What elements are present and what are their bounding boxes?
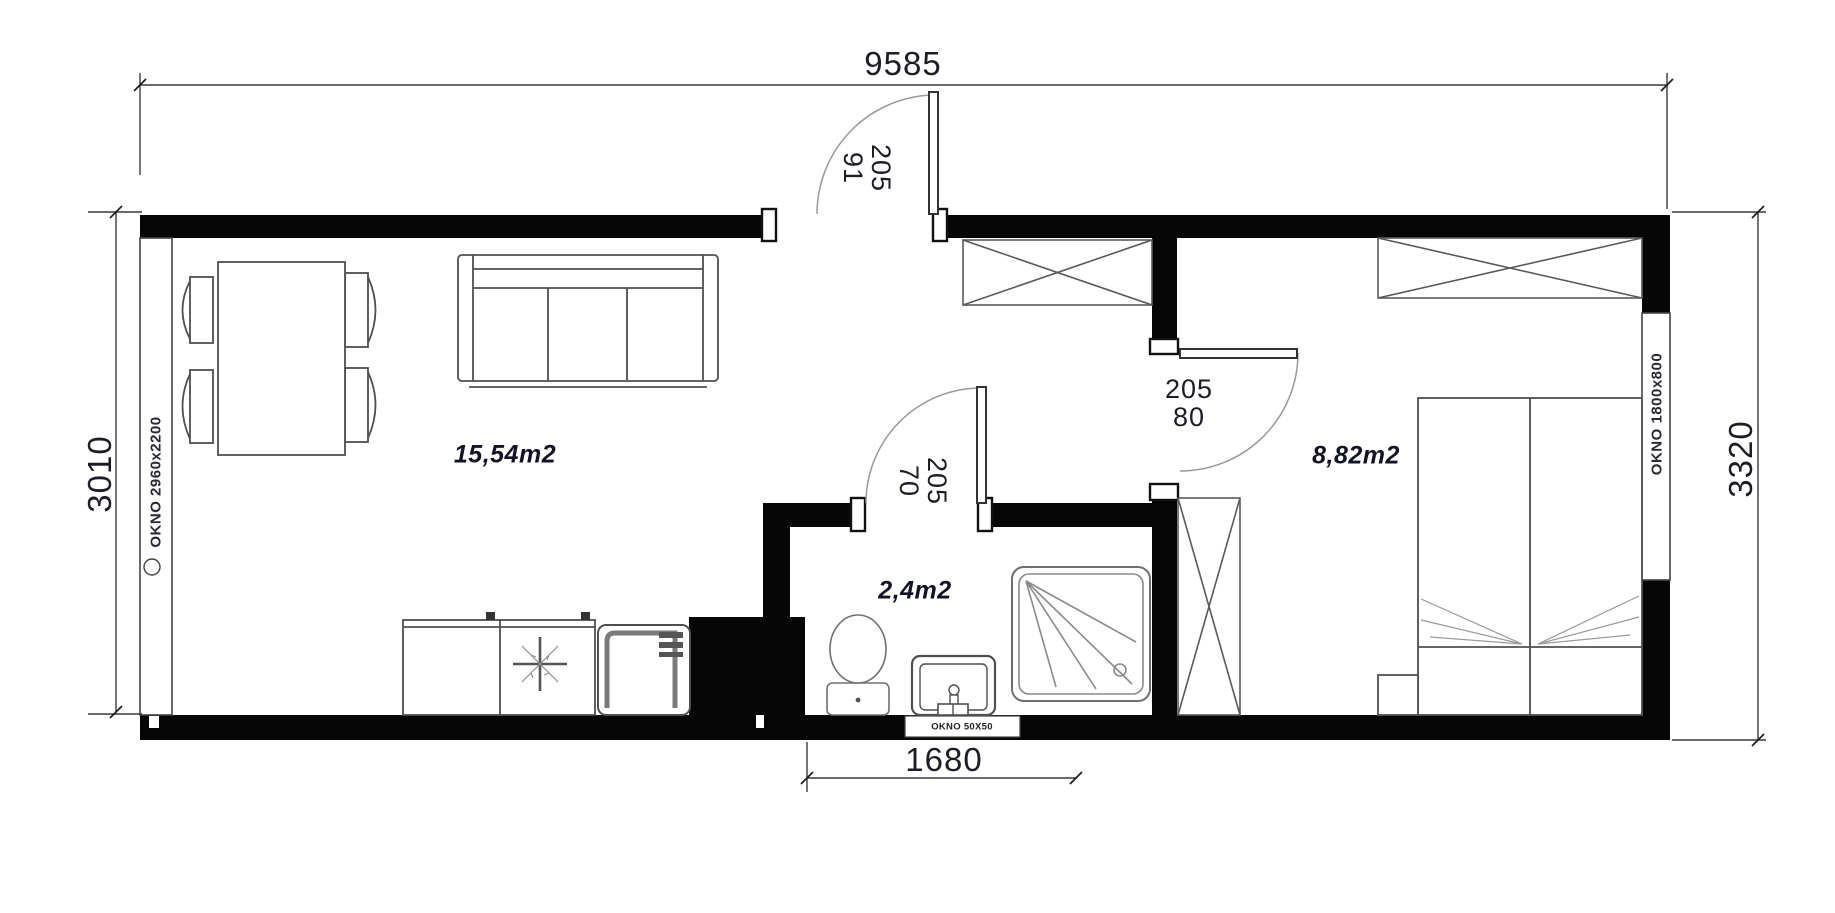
bathroom-door-height: 205 xyxy=(923,457,951,505)
sink-drain xyxy=(949,685,959,695)
wall-bathroom-top-right xyxy=(985,503,1177,527)
window-bathroom-label: OKNO 50X50 xyxy=(931,722,993,733)
entrance-door-leaf xyxy=(929,92,938,214)
toilet xyxy=(827,615,889,715)
window-left-label: OKNO 2960x2200 xyxy=(148,416,165,547)
dim-bathroom-width: 1680 xyxy=(905,741,982,779)
living-room-area-label: 15,54m2 xyxy=(454,441,556,470)
fridge-grille-icon xyxy=(659,642,683,648)
bedside-shelf xyxy=(1378,675,1418,715)
fridge-grille-icon xyxy=(659,632,683,638)
wall-partition-bedroom xyxy=(1152,238,1177,352)
wall-notch xyxy=(756,715,764,728)
jamb-bathroom-left xyxy=(851,498,865,531)
dim-total-width: 9585 xyxy=(864,45,941,83)
chair-back xyxy=(183,281,191,339)
toilet-button xyxy=(856,698,861,703)
toilet-bowl xyxy=(830,615,886,683)
bedroom-door-leaf xyxy=(1180,349,1297,358)
shower xyxy=(1012,567,1150,701)
bathroom-door-width: 70 xyxy=(895,457,923,505)
fridge-grille-icon xyxy=(659,652,683,657)
wall-bathroom-left xyxy=(763,503,790,618)
chair-back xyxy=(368,372,376,438)
fridge xyxy=(598,625,690,715)
chair xyxy=(345,273,368,347)
chair xyxy=(345,368,368,442)
dim-right-height: 3320 xyxy=(1722,420,1760,497)
bedroom-door-width: 80 xyxy=(1165,403,1213,431)
dim-left-height: 3010 xyxy=(81,435,119,512)
jamb-bedroom-top xyxy=(1150,339,1178,354)
jamb-bedroom-bottom xyxy=(1150,484,1178,500)
wall-right-upper xyxy=(1642,215,1670,313)
window-right-label: OKNO 1800x800 xyxy=(1649,353,1666,475)
chair xyxy=(190,277,213,343)
wall-kitchen-mass xyxy=(689,617,805,715)
bed xyxy=(1378,398,1642,715)
sofa-body xyxy=(458,255,718,381)
bedroom-door-label: 205 80 xyxy=(1165,375,1213,431)
bathroom-area-label: 2,4m2 xyxy=(878,577,951,606)
wall-top-left xyxy=(140,215,767,238)
jamb-entrance-left xyxy=(762,209,776,241)
chair-back xyxy=(183,374,191,439)
counter-handle xyxy=(581,612,590,620)
wall-notch-left xyxy=(149,716,159,728)
counter-handle xyxy=(486,612,495,620)
entrance-door-height: 205 xyxy=(867,144,895,192)
dining-set xyxy=(183,262,376,455)
bedroom-area-label: 8,82m2 xyxy=(1312,442,1400,471)
chair-back xyxy=(368,277,376,343)
sofa xyxy=(458,255,718,387)
chair xyxy=(190,370,213,443)
bedroom-door-height: 205 xyxy=(1165,375,1213,403)
floor-plan-canvas: 9585 3010 3320 1680 205 91 205 80 205 70… xyxy=(0,0,1835,913)
counter-outline xyxy=(403,620,595,715)
bathroom-door-leaf xyxy=(977,387,986,503)
entrance-door-label: 205 91 xyxy=(839,144,895,192)
sink xyxy=(912,656,995,715)
dining-table xyxy=(218,262,345,455)
wall-bathroom-right xyxy=(1152,499,1177,715)
wall-top-right xyxy=(945,215,1670,238)
bathroom-door-label: 205 70 xyxy=(895,457,951,505)
entrance-door-width: 91 xyxy=(839,144,867,192)
